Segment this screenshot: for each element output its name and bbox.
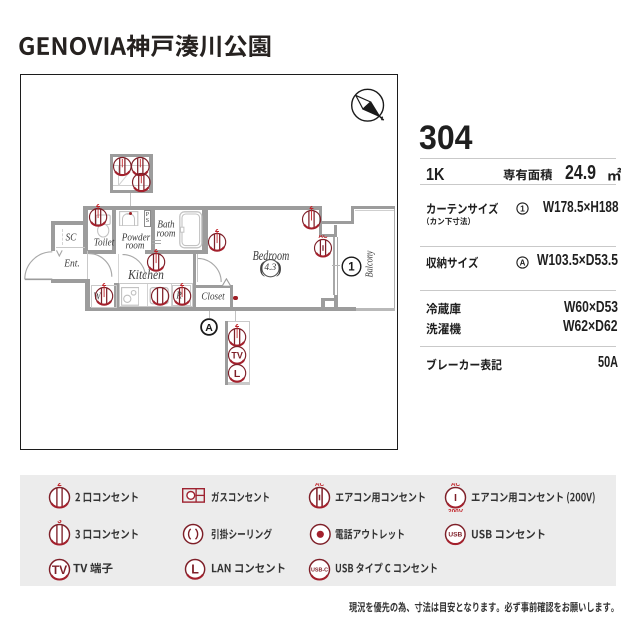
svg-text:1: 1 (520, 204, 525, 214)
svg-text:TV: TV (51, 563, 66, 577)
svg-text:1: 1 (348, 261, 355, 273)
svg-text:A: A (519, 258, 525, 267)
svg-text:USB: USB (448, 532, 462, 539)
svg-text:L: L (192, 563, 200, 577)
svg-text:200V: 200V (448, 508, 464, 511)
svg-text:USB-C: USB-C (311, 567, 328, 573)
svg-text:A: A (206, 322, 214, 334)
svg-text:L: L (234, 369, 241, 380)
